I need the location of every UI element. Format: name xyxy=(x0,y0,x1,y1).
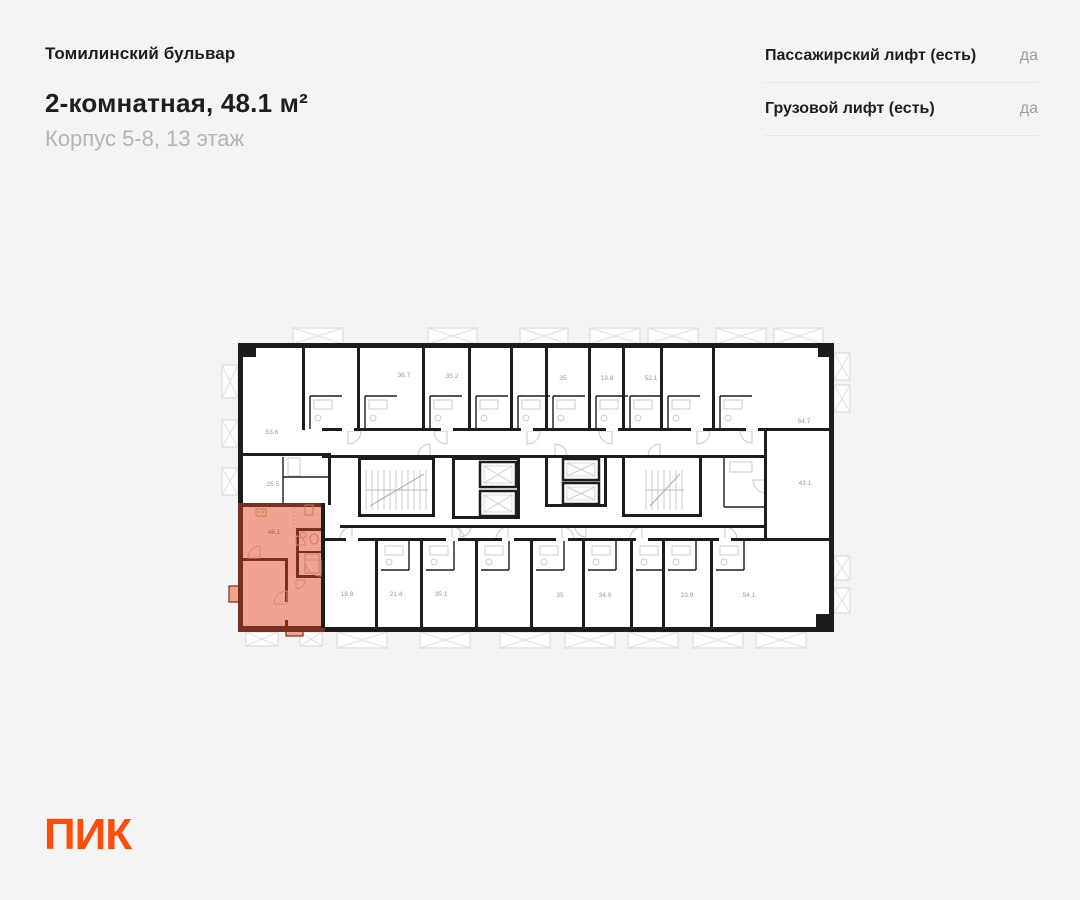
area-label: 34.9 xyxy=(599,592,612,599)
area-label: 21.4 xyxy=(390,591,403,598)
area-label: 25.5 xyxy=(267,481,280,488)
selected-area-label: 48.1 xyxy=(268,529,281,536)
balcony xyxy=(428,328,477,344)
floor-plan: 53.636.735.23519.852.154.725.543.118.921… xyxy=(0,0,1080,900)
balcony xyxy=(222,420,238,447)
balcony xyxy=(648,328,698,344)
area-label: 35 xyxy=(559,375,567,382)
balcony xyxy=(834,385,850,412)
balcony xyxy=(834,556,850,580)
elevator-shaft xyxy=(480,491,516,516)
area-label: 53.6 xyxy=(266,429,279,436)
area-label: 36.7 xyxy=(398,372,411,379)
balcony xyxy=(716,328,766,344)
area-label: 43.1 xyxy=(799,480,812,487)
balcony xyxy=(420,632,470,648)
area-label: 19.8 xyxy=(601,375,614,382)
area-label: 54.1 xyxy=(743,592,756,599)
area-label: 23.9 xyxy=(681,592,694,599)
balcony xyxy=(590,328,640,344)
balcony xyxy=(834,353,850,380)
balcony xyxy=(565,632,615,648)
balcony xyxy=(628,632,678,648)
balcony xyxy=(293,328,343,344)
area-label: 35.2 xyxy=(446,373,459,380)
elevator-shaft xyxy=(480,462,516,487)
balcony xyxy=(756,632,806,648)
balcony xyxy=(834,588,850,613)
balcony xyxy=(222,365,238,398)
area-label: 35.1 xyxy=(435,591,448,598)
elevator-shaft xyxy=(563,483,599,504)
balcony xyxy=(222,468,238,495)
building-interior xyxy=(238,343,834,632)
area-label: 35 xyxy=(556,592,564,599)
balcony xyxy=(520,328,568,344)
pik-logo: ПИК xyxy=(44,810,131,860)
balcony xyxy=(693,632,743,648)
area-label: 18.9 xyxy=(341,591,354,598)
elevator-shaft xyxy=(563,459,599,480)
balcony xyxy=(337,632,387,648)
balcony xyxy=(500,632,550,648)
area-label: 52.1 xyxy=(645,375,658,382)
balcony xyxy=(246,632,278,646)
selected-apartment[interactable] xyxy=(229,503,325,636)
area-label: 54.7 xyxy=(798,418,811,425)
balcony xyxy=(774,328,823,344)
